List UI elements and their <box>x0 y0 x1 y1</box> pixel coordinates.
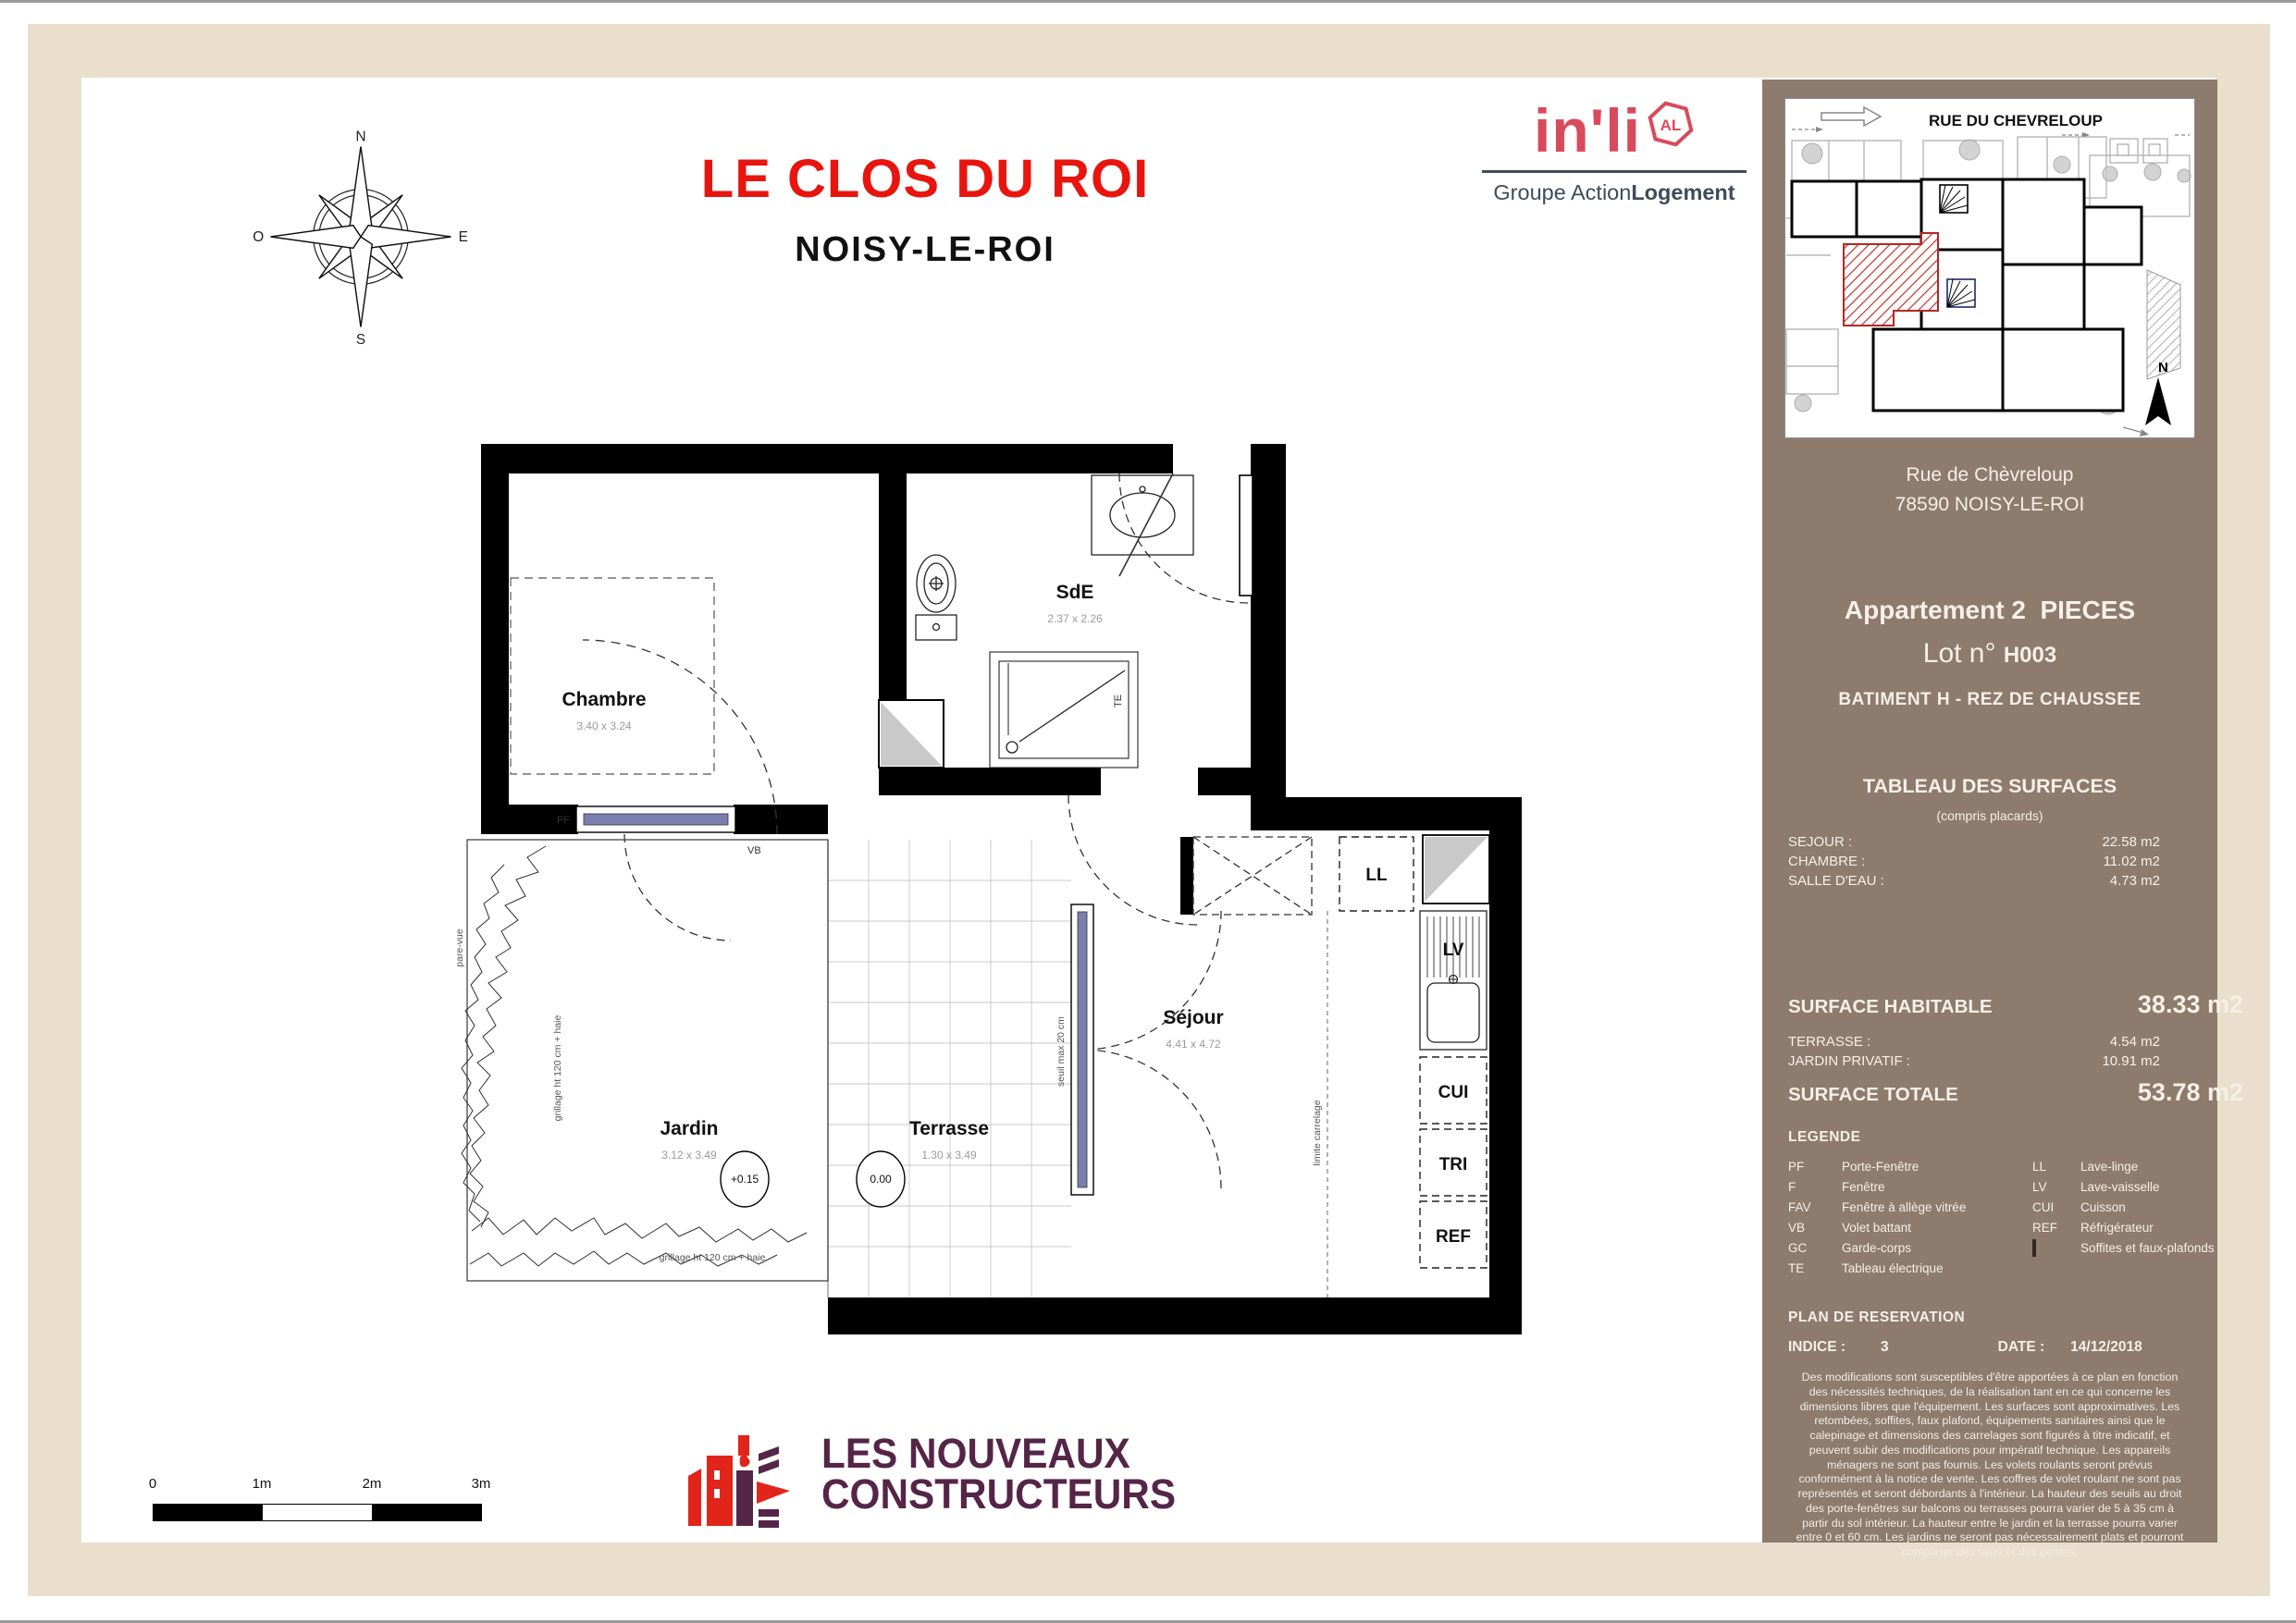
address-line1: Rue de Chèvreloup <box>1762 461 2217 490</box>
surface-row-salle-deau: SALLE D'EAU : 4.73 m2 <box>1788 871 2160 891</box>
legend-label: Lave-linge <box>2080 1160 2243 1174</box>
legend-label: Fenêtre à allège vitrée <box>1842 1200 2032 1214</box>
kitchen-units <box>1339 835 1489 1268</box>
indice-label: INDICE : <box>1788 1339 1845 1356</box>
room-label-jardin: Jardin <box>660 1118 718 1139</box>
title-block: LE CLOS DU ROI NOISY-LE-ROI <box>592 148 1258 270</box>
legend: PF Porte-Fenêtre LL Lave-linge F Fenêtre… <box>1788 1160 2243 1275</box>
legend-label: Lave-vaisselle <box>2080 1180 2243 1194</box>
surface-value: 4.73 m2 <box>2110 871 2160 891</box>
appliance-lv: LV <box>1443 941 1464 960</box>
site-plan-street: RUE DU CHEVRELOUP <box>1929 112 2103 129</box>
garden <box>462 840 828 1281</box>
legend-abbr: GC <box>1788 1241 1842 1255</box>
surface-habitable-row: SURFACE HABITABLE 38.33 m2 <box>1788 990 2243 1019</box>
legend-label: Garde-corps <box>1842 1241 2032 1255</box>
surface-row-terrasse: TERRASSE : 4.54 m2 <box>1788 1032 2160 1051</box>
surface-value: 22.58 m2 <box>2102 832 2160 852</box>
room-dims-chambre: 3.40 x 3.24 <box>576 719 632 732</box>
legend-abbr: FAV <box>1788 1200 1842 1214</box>
legend-label: Tableau électrique <box>1842 1261 2032 1275</box>
label-pf: PF <box>557 815 570 826</box>
surface-label: SEJOUR : <box>1788 832 1852 852</box>
surfaces-subtitle: (compris placards) <box>1762 808 2217 823</box>
lnc-logo-icon <box>686 1433 807 1530</box>
plan-reservation-title: PLAN DE RESERVATION <box>1788 1309 2243 1326</box>
level-jardin: +0.15 <box>731 1173 759 1186</box>
date-value: 14/12/2018 <box>2070 1339 2142 1356</box>
surface-row-sejour: SEJOUR : 22.58 m2 <box>1788 832 2160 852</box>
compass-o-label: O <box>253 229 264 245</box>
surface-value: 4.54 m2 <box>2110 1032 2160 1051</box>
inli-al-hexagon-icon: AL <box>1647 100 1695 148</box>
surface-totale-value: 53.78 m2 <box>2138 1078 2243 1107</box>
room-label-sde: SdE <box>1056 582 1094 603</box>
terrace-tiles <box>828 840 1071 1297</box>
legend-abbr: CUI <box>2032 1200 2080 1214</box>
soffit-box <box>1193 837 1312 915</box>
legend-abbr: LV <box>2032 1180 2080 1194</box>
inli-divider <box>1482 170 1747 173</box>
legend-label: Volet battant <box>1842 1221 2032 1235</box>
surface-habitable-label: SURFACE HABITABLE <box>1788 996 1993 1018</box>
inli-group-text: Groupe ActionLogement <box>1480 180 1748 205</box>
surface-label: JARDIN PRIVATIF : <box>1788 1051 1910 1071</box>
date-label: DATE : <box>1998 1339 2045 1356</box>
disclaimer-text: Des modifications sont susceptibles d'êt… <box>1762 1371 2217 1560</box>
legend-label: Cuisson <box>2080 1200 2243 1214</box>
scale-label-2m: 2m <box>363 1476 382 1492</box>
surface-label: SALLE D'EAU : <box>1788 871 1884 891</box>
soffit-hatch-swatch <box>2032 1239 2036 1257</box>
surfaces-title: TABLEAU DES SURFACES <box>1762 775 2217 798</box>
lnc-logo: LES NOUVEAUX CONSTRUCTEURS <box>686 1433 1199 1530</box>
inli-logo-text: in'li <box>1534 100 1641 161</box>
lot-label: Lot n° <box>1923 638 1996 669</box>
label-grillage-left: grillage ht 120 cm + haie <box>552 1014 563 1121</box>
room-dims-terrasse: 1.30 x 3.49 <box>921 1149 977 1162</box>
label-pare-vue: pare-vue <box>454 928 465 967</box>
surface-habitable-value: 38.33 m2 <box>2138 990 2243 1019</box>
building-label: BATIMENT H - REZ DE CHAUSSEE <box>1762 690 2217 710</box>
compass-s-label: S <box>356 332 365 346</box>
site-plan: RUE DU CHEVRELOUP <box>1784 98 2195 438</box>
legend-abbr: REF <box>2032 1221 2080 1235</box>
compass-rose-icon: N E S O <box>252 128 470 346</box>
room-dims-sejour: 4.41 x 4.72 <box>1166 1038 1221 1051</box>
inli-group-normal: Groupe Action <box>1493 180 1631 204</box>
label-vb: VB <box>747 845 761 856</box>
site-plan-north-label: N <box>2158 360 2168 375</box>
windows <box>576 806 1093 1195</box>
legend-label: Réfrigérateur <box>2080 1221 2243 1235</box>
inli-logo: in'li AL Groupe ActionLogement <box>1480 100 1748 205</box>
label-grillage-bottom: grillage ht 120 cm + haie <box>660 1252 766 1263</box>
compass-e-label: E <box>459 229 468 245</box>
appliance-tri: TRI <box>1439 1155 1468 1174</box>
appliance-cui: CUI <box>1438 1083 1469 1102</box>
compass-n-label: N <box>355 129 365 144</box>
label-limite-carrelage: limite carrelage <box>1312 1100 1323 1165</box>
scale-bar: 0 1m 2m 3m <box>153 1476 482 1521</box>
legend-title: LEGENDE <box>1788 1129 2243 1146</box>
address-line2: 78590 NOISY-LE-ROI <box>1762 490 2217 520</box>
legend-label: Porte-Fenêtre <box>1842 1160 2032 1174</box>
scale-label-1m: 1m <box>253 1476 272 1492</box>
label-te: TE <box>1113 695 1124 707</box>
scale-label-3m: 3m <box>472 1476 491 1492</box>
legend-abbr: TE <box>1788 1261 1842 1275</box>
legend-abbr: VB <box>1788 1221 1842 1235</box>
surface-label: CHAMBRE : <box>1788 852 1865 871</box>
surface-value: 10.91 m2 <box>2102 1051 2160 1071</box>
project-title: LE CLOS DU ROI <box>592 148 1258 210</box>
appliance-ll: LL <box>1365 866 1388 885</box>
surface-row-jardin: JARDIN PRIVATIF : 10.91 m2 <box>1788 1051 2160 1071</box>
legend-abbr: PF <box>1788 1160 1842 1174</box>
room-dims-sde: 2.37 x 2.26 <box>1047 612 1103 625</box>
indice-date-row: INDICE : 3 DATE : 14/12/2018 <box>1788 1339 2243 1356</box>
surface-value: 11.02 m2 <box>2104 852 2160 871</box>
surface-totale-label: SURFACE TOTALE <box>1788 1084 1958 1106</box>
room-label-chambre: Chambre <box>562 689 646 710</box>
inli-al-text: AL <box>1660 117 1682 134</box>
room-label-sejour: Séjour <box>1163 1007 1223 1028</box>
surface-totale-row: SURFACE TOTALE 53.78 m2 <box>1788 1078 2243 1107</box>
lnc-line2: CONSTRUCTEURS <box>821 1474 1176 1515</box>
scale-label-0: 0 <box>149 1476 156 1492</box>
inli-group-bold: Logement <box>1631 180 1734 204</box>
surface-label: TERRASSE : <box>1788 1032 1870 1051</box>
project-city: NOISY-LE-ROI <box>592 230 1258 270</box>
legend-label: Soffites et faux-plafonds <box>2080 1241 2243 1255</box>
legend-abbr: F <box>1788 1180 1842 1194</box>
indice-value: 3 <box>1881 1339 1889 1356</box>
page-top-edge <box>0 0 2296 3</box>
apartment-title: Appartement 2 PIECES <box>1762 596 2217 625</box>
level-terrasse: 0.00 <box>870 1173 892 1186</box>
info-sidebar: RUE DU CHEVRELOUP <box>1762 80 2217 1543</box>
floor-plan: Chambre 3.40 x 3.24 SdE 2.37 x 2.26 Séjo… <box>453 430 1545 1355</box>
appliance-ref: REF <box>1436 1227 1471 1247</box>
apartment-highlight <box>1844 233 1938 326</box>
legend-label: Fenêtre <box>1842 1180 2032 1194</box>
room-dims-jardin: 3.12 x 3.49 <box>661 1149 717 1162</box>
scale-bar-graphic <box>153 1504 482 1521</box>
surface-row-chambre: CHAMBRE : 11.02 m2 <box>1788 852 2160 871</box>
legend-abbr: LL <box>2032 1160 2080 1174</box>
label-seuil: seuil max 20 cm <box>1055 1016 1067 1087</box>
lnc-line1: LES NOUVEAUX <box>821 1433 1176 1474</box>
room-label-terrasse: Terrasse <box>909 1118 989 1139</box>
lot-value: H003 <box>2004 643 2056 668</box>
reservation-plan-page: N E S O LE CLOS DU ROI NOISY-LE-ROI in'l… <box>0 0 2296 1623</box>
